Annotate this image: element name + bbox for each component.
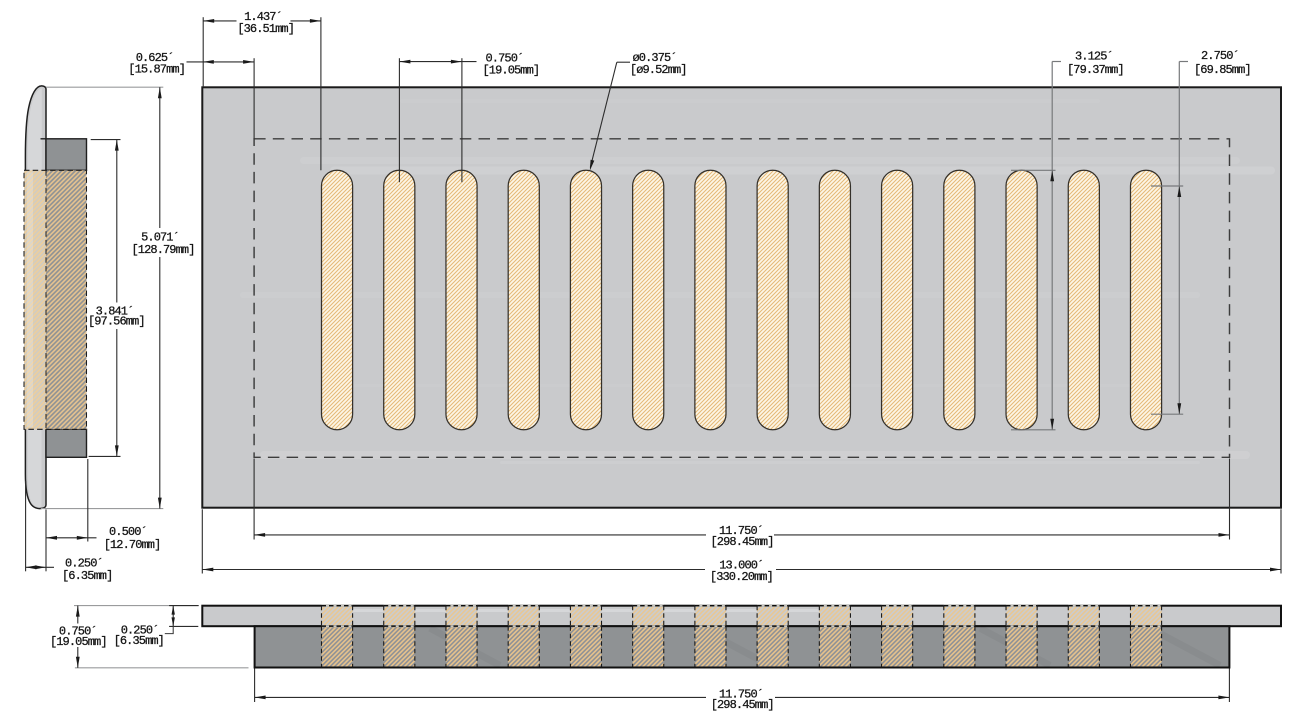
svg-text:[6.35mm]: [6.35mm] <box>114 634 164 648</box>
svg-text:0.250´: 0.250´ <box>65 556 103 570</box>
svg-text:[79.37mm]: [79.37mm] <box>1067 63 1124 77</box>
svg-text:[298.45mm]: [298.45mm] <box>711 698 774 712</box>
svg-text:[19.05mm]: [19.05mm] <box>50 635 107 649</box>
svg-text:3.125´: 3.125´ <box>1075 49 1113 63</box>
svg-text:[19.05mm]: [19.05mm] <box>483 63 540 77</box>
svg-text:2.750´: 2.750´ <box>1201 49 1239 63</box>
svg-text:[12.70mm]: [12.70mm] <box>104 538 161 552</box>
svg-text:[128.79mm]: [128.79mm] <box>131 243 194 257</box>
svg-text:[ø9.52mm]: [ø9.52mm] <box>630 63 687 77</box>
svg-text:[330.20mm]: [330.20mm] <box>710 570 773 584</box>
svg-text:[36.51mm]: [36.51mm] <box>237 22 294 36</box>
svg-text:[69.85mm]: [69.85mm] <box>1194 63 1251 77</box>
svg-text:0.500´: 0.500´ <box>109 525 147 539</box>
svg-text:[97.56mm]: [97.56mm] <box>88 315 145 329</box>
svg-text:[6.35mm]: [6.35mm] <box>62 569 112 583</box>
svg-text:[298.45mm]: [298.45mm] <box>710 535 773 549</box>
svg-text:[15.87mm]: [15.87mm] <box>128 63 185 77</box>
